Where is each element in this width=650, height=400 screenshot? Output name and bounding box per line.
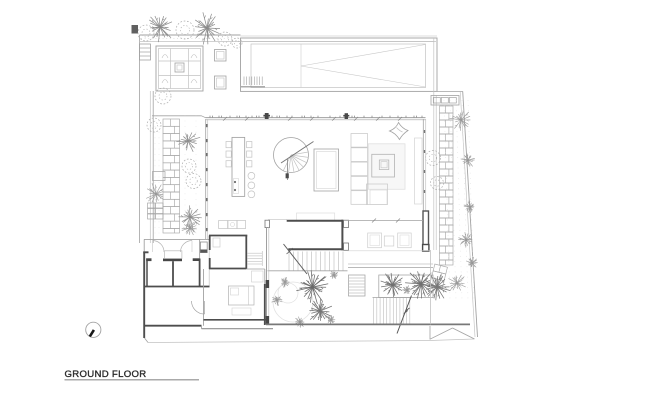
- svg-text:GROUND FLOOR: GROUND FLOOR: [65, 369, 147, 380]
